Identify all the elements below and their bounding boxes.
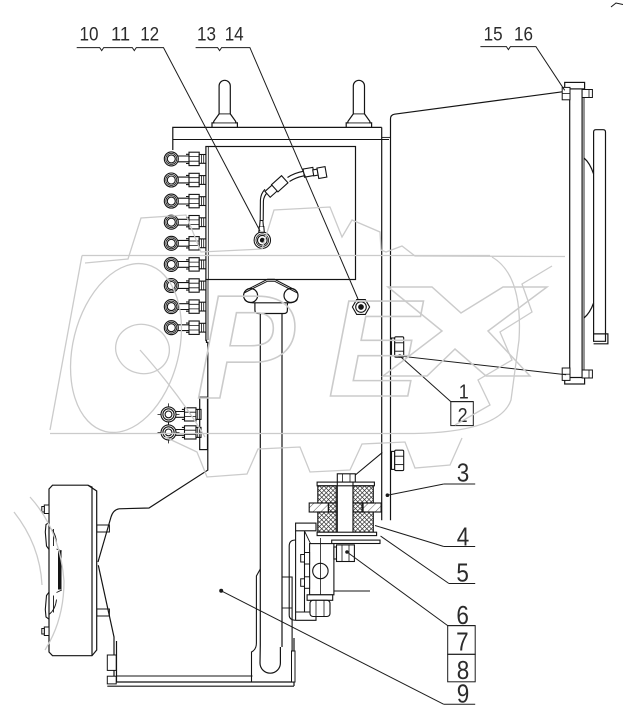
svg-text:1: 1 (459, 381, 469, 404)
svg-text:E: E (328, 272, 424, 426)
svg-text:12: 12 (140, 23, 159, 45)
svg-text:15: 15 (484, 23, 503, 45)
svg-text:5: 5 (456, 558, 469, 588)
svg-text:9: 9 (457, 679, 470, 709)
svg-text:3: 3 (457, 457, 470, 487)
svg-text:10: 10 (80, 23, 99, 45)
svg-text:2: 2 (458, 404, 468, 427)
svg-text:14: 14 (225, 23, 244, 45)
svg-text:4: 4 (457, 521, 470, 551)
svg-text:13: 13 (197, 23, 216, 45)
svg-text:16: 16 (514, 23, 533, 45)
svg-text:11: 11 (111, 23, 130, 45)
svg-text:P: P (196, 265, 295, 430)
svg-text:7: 7 (456, 626, 469, 656)
